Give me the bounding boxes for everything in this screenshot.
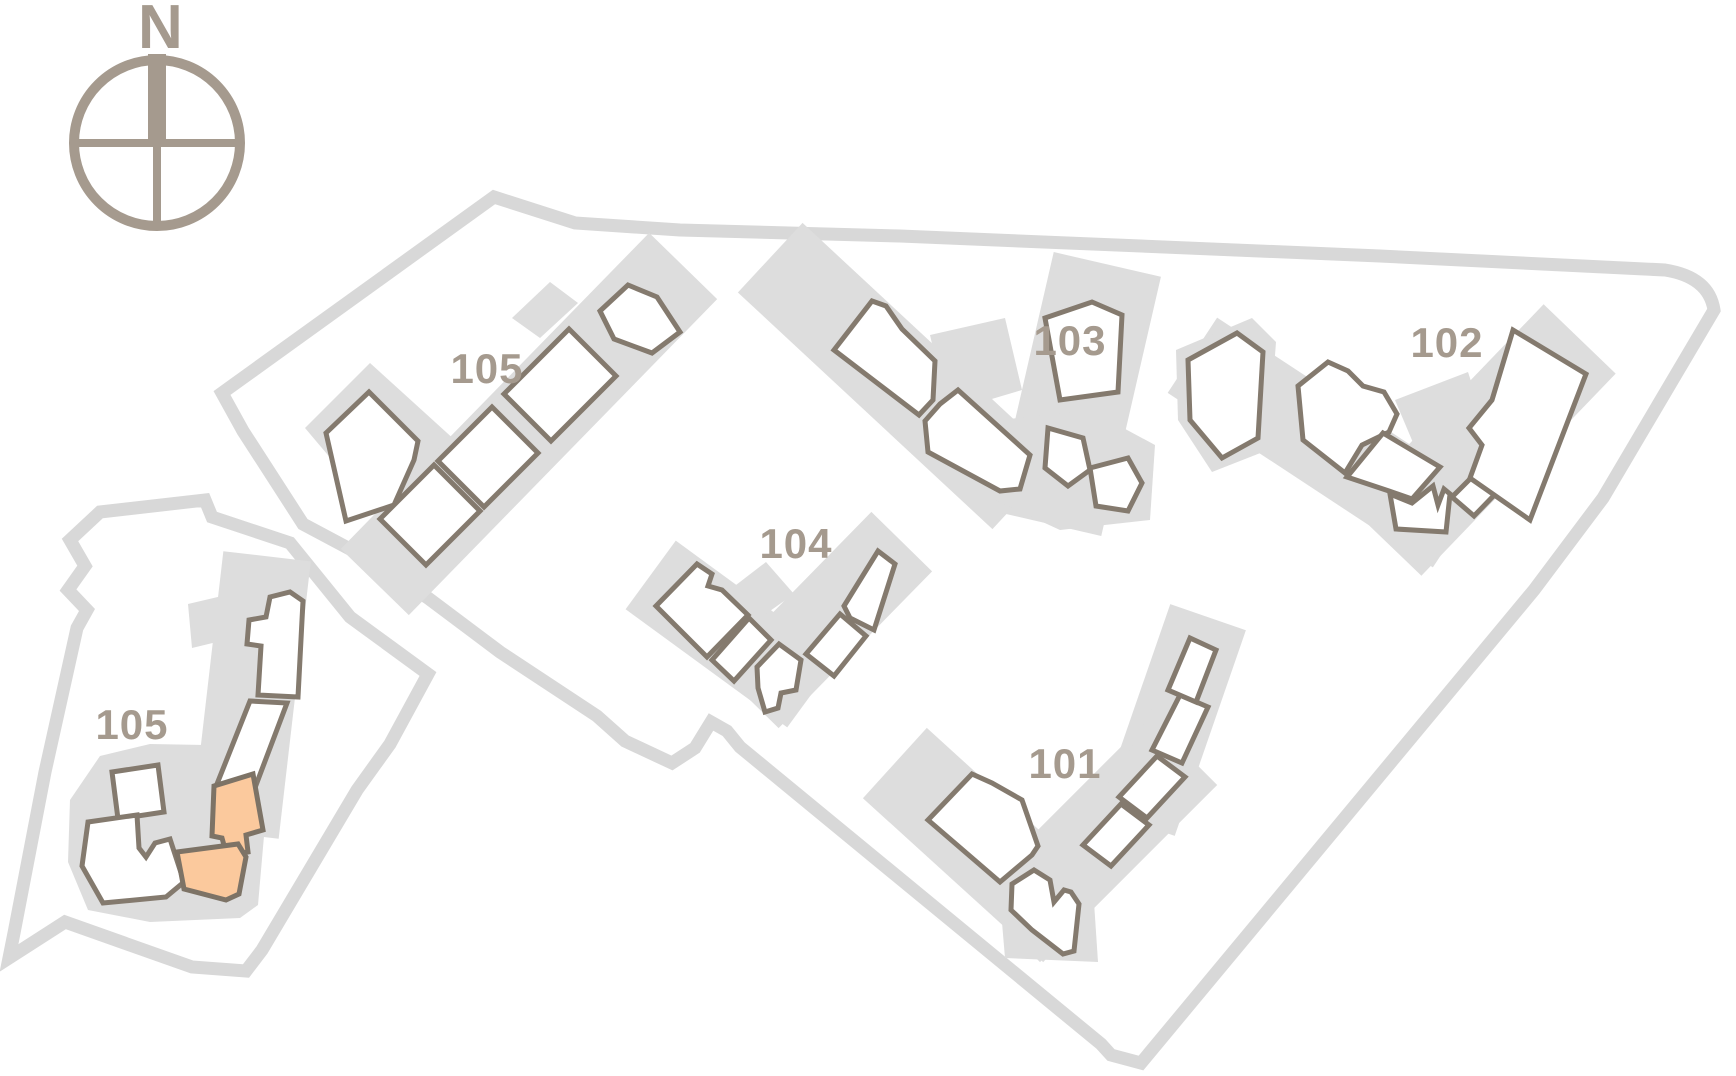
site-plan: N 105 103: [0, 0, 1736, 1076]
compass-north-label: N: [138, 0, 183, 62]
building-104: 104: [656, 520, 895, 712]
building-label: 103: [1033, 317, 1106, 364]
building-105-lower: 105: [68, 592, 303, 922]
compass-north-bar: [148, 54, 166, 144]
building-backdrop: [188, 596, 225, 648]
building-101: 101: [928, 638, 1216, 962]
building-label: 105: [95, 701, 168, 748]
building-label: 104: [759, 520, 832, 567]
site-plan-page: N 105 103: [0, 0, 1736, 1076]
building-105-upper: 105: [305, 282, 680, 565]
unit-highlighted[interactable]: [177, 844, 246, 900]
compass: N: [74, 0, 240, 226]
building-103: 103: [805, 290, 1155, 530]
building-label: 102: [1410, 319, 1483, 366]
building-label: 105: [450, 345, 523, 392]
building-102: 102: [1176, 318, 1586, 532]
unit: [112, 765, 164, 819]
unit: [1090, 458, 1142, 511]
building-label: 101: [1028, 740, 1101, 787]
